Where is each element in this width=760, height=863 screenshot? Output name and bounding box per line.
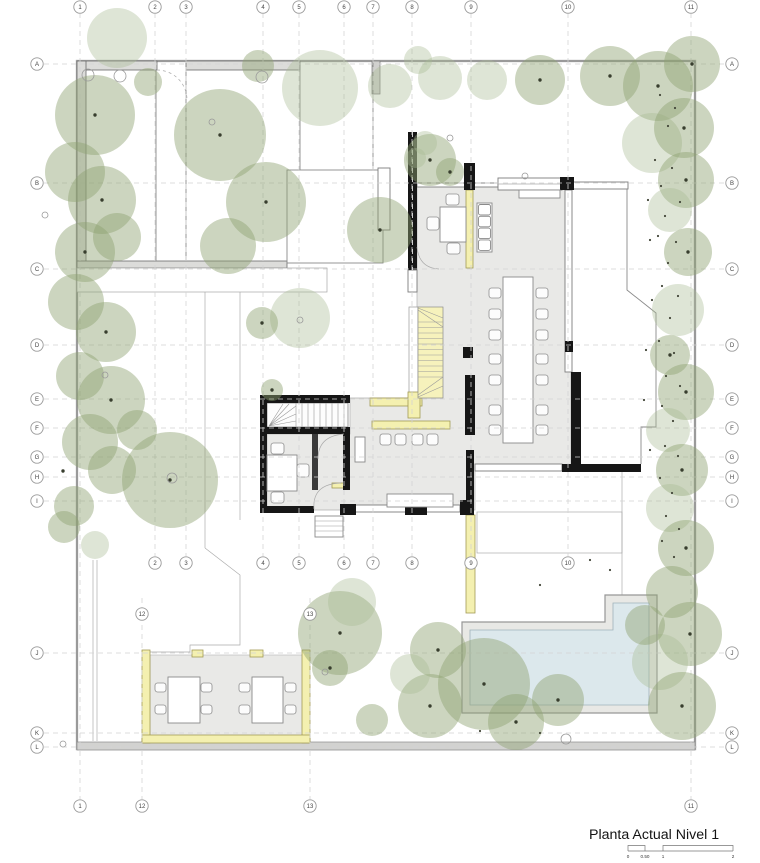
- grid-marker-label: J: [36, 651, 39, 657]
- gravel-dot: [654, 159, 656, 161]
- yellow-wall-upper: [466, 190, 473, 268]
- grid-marker: C: [726, 263, 738, 275]
- grid-marker: 7: [367, 557, 379, 569]
- tree: [356, 704, 388, 736]
- gravel-dot: [679, 201, 681, 203]
- steps-body: [315, 516, 343, 537]
- gravel-dot: [661, 285, 663, 287]
- grid-marker: H: [726, 471, 738, 483]
- grid-marker-label: 10: [565, 5, 572, 11]
- grid-marker: J: [31, 647, 43, 659]
- tree-trunk-dot: [690, 62, 693, 65]
- grid-marker: 5: [293, 557, 305, 569]
- chair: [536, 375, 548, 385]
- tree: [406, 148, 426, 168]
- grid-marker: D: [726, 339, 738, 351]
- gravel-dot: [664, 215, 666, 217]
- patio-wall-south: [142, 735, 310, 743]
- south-window-wall: [475, 464, 562, 471]
- tree-trunk-dot: [428, 158, 431, 161]
- stair-shaft-wall: [409, 307, 418, 398]
- east-path-wall: [572, 182, 628, 189]
- grid-marker-label: G: [35, 455, 40, 461]
- patio-terrace: [142, 650, 310, 743]
- scale-label: 2: [732, 854, 735, 859]
- table: [503, 277, 533, 443]
- grid-marker: C: [31, 263, 43, 275]
- grid-marker-label: F: [730, 426, 734, 432]
- tree-trunk-dot: [680, 704, 683, 707]
- tree-trunk-dot: [688, 632, 691, 635]
- tree-trunk-dot: [684, 390, 687, 393]
- entry-steps: [315, 516, 343, 537]
- patio-post: [250, 650, 263, 657]
- tree: [390, 654, 430, 694]
- table: [168, 677, 200, 723]
- chair: [536, 405, 548, 415]
- chair: [412, 434, 423, 445]
- chair: [489, 425, 501, 435]
- grid-marker-label: A: [730, 62, 734, 68]
- black-wall: [466, 450, 474, 502]
- chair: [427, 217, 439, 230]
- gravel-dot: [678, 528, 680, 530]
- grid-marker: G: [31, 451, 43, 463]
- grid-marker: 4: [257, 1, 269, 13]
- tree: [652, 284, 704, 336]
- gravel-dot: [667, 262, 669, 264]
- tree-trunk-dot: [684, 546, 687, 549]
- black-wall: [565, 341, 573, 352]
- gravel-dot: [539, 732, 541, 734]
- chair: [239, 683, 250, 692]
- grid-marker-label: K: [730, 731, 734, 737]
- chair: [536, 425, 548, 435]
- grid-marker: 8: [406, 557, 418, 569]
- grid-marker: 13: [304, 608, 316, 620]
- tree: [648, 188, 692, 232]
- grid-marker-label: C: [730, 267, 735, 273]
- tree: [242, 50, 274, 82]
- gravel-dot: [589, 559, 591, 561]
- gravel-dot: [651, 299, 653, 301]
- grid-marker: 9: [465, 557, 477, 569]
- tree: [48, 511, 80, 543]
- gravel-dot: [665, 515, 667, 517]
- gravel-dot: [659, 477, 661, 479]
- grid-marker-label: F: [35, 426, 39, 432]
- grid-marker: L: [31, 741, 43, 753]
- gravel-dot: [539, 584, 541, 586]
- black-wall: [560, 177, 574, 190]
- grid-marker: A: [726, 58, 738, 70]
- chair: [285, 705, 296, 714]
- gravel-dot: [673, 556, 675, 558]
- gravel-dot: [661, 540, 663, 542]
- grid-marker: B: [726, 177, 738, 189]
- gravel-dot: [664, 445, 666, 447]
- tree-trunk-dot: [684, 178, 687, 181]
- tree-trunk-dot: [168, 478, 171, 481]
- black-wall: [460, 500, 474, 515]
- patio-wall-west: [142, 650, 150, 743]
- grid-marker: A: [31, 58, 43, 70]
- tree: [282, 50, 358, 126]
- table: [440, 207, 466, 242]
- tree-trunk-dot: [682, 126, 685, 129]
- grid-marker: F: [726, 422, 738, 434]
- black-wall: [463, 347, 473, 358]
- chair: [380, 434, 391, 445]
- sofa-cushion: [479, 240, 491, 251]
- tree-trunk-dot: [93, 113, 96, 116]
- grid-marker: 12: [136, 800, 148, 812]
- grid-marker-label: J: [731, 651, 734, 657]
- black-wall: [562, 464, 641, 472]
- grid-marker: B: [31, 177, 43, 189]
- tree-trunk-dot: [556, 698, 559, 701]
- chair: [201, 705, 212, 714]
- grid-marker: G: [726, 451, 738, 463]
- gravel-dot: [667, 125, 669, 127]
- gravel-dot: [671, 167, 673, 169]
- sofa-cushion: [479, 205, 491, 216]
- gravel-dot: [671, 492, 673, 494]
- grid-marker: 4: [257, 557, 269, 569]
- tree-trunk-dot: [686, 250, 689, 253]
- scale-label: 0.50: [641, 854, 650, 859]
- tree: [328, 578, 376, 626]
- tree: [81, 531, 109, 559]
- chair: [201, 683, 212, 692]
- grid-marker: H: [31, 471, 43, 483]
- plan-title: Planta Actual Nivel 1: [589, 827, 719, 843]
- gravel-dot: [669, 317, 671, 319]
- grid-marker: I: [31, 495, 43, 507]
- grid-marker-label: H: [35, 475, 39, 481]
- grid-marker-label: 10: [565, 561, 572, 567]
- grid-marker: 9: [465, 1, 477, 13]
- grid-marker: 10: [562, 1, 574, 13]
- grid-marker: K: [31, 727, 43, 739]
- sofa-cushion: [479, 228, 491, 239]
- gravel-dot: [675, 241, 677, 243]
- grid-marker-label: E: [730, 397, 734, 403]
- black-wall: [464, 163, 475, 190]
- grid-marker-label: 13: [307, 612, 314, 618]
- chair: [536, 288, 548, 298]
- tree-trunk-dot: [538, 78, 541, 81]
- black-wall: [260, 395, 267, 513]
- chair: [489, 288, 501, 298]
- gravel-dot: [665, 375, 667, 377]
- gravel-dot: [658, 340, 660, 342]
- gravel-dot: [672, 420, 674, 422]
- tree-trunk-dot: [338, 631, 341, 634]
- tree-trunk-dot: [328, 666, 331, 669]
- tree: [467, 60, 507, 100]
- grid-marker-label: G: [730, 455, 735, 461]
- chair: [489, 309, 501, 319]
- chair: [489, 354, 501, 364]
- grid-marker-label: 12: [139, 612, 146, 618]
- tree-trunk-dot: [83, 250, 86, 253]
- grid-marker: 11: [685, 800, 697, 812]
- tree-trunk-dot: [448, 170, 451, 173]
- tree: [270, 288, 330, 348]
- tree-trunk-dot: [378, 228, 381, 231]
- sofa-cushion: [479, 216, 491, 227]
- grid-marker: 2: [149, 557, 161, 569]
- grid-marker: L: [726, 741, 738, 753]
- tree-trunk-dot: [104, 330, 107, 333]
- grid-marker: 7: [367, 1, 379, 13]
- grid-marker: D: [31, 339, 43, 351]
- grid-marker: F: [31, 422, 43, 434]
- grid-marker: 2: [149, 1, 161, 13]
- grid-marker-label: 11: [688, 5, 695, 11]
- tree: [368, 64, 412, 108]
- gravel-dot: [643, 399, 645, 401]
- tree-trunk-dot: [680, 468, 683, 471]
- gravel-dot: [679, 385, 681, 387]
- chair: [239, 705, 250, 714]
- scale-label: 0: [627, 854, 630, 859]
- gravel-dot: [609, 569, 611, 571]
- chair: [447, 243, 460, 254]
- chair: [489, 375, 501, 385]
- table: [387, 494, 453, 507]
- chair: [536, 330, 548, 340]
- patio-post: [192, 650, 203, 657]
- grid-marker-label: D: [35, 343, 40, 349]
- grid-marker-label: B: [35, 181, 39, 187]
- table: [267, 455, 297, 491]
- chair: [427, 434, 438, 445]
- gravel-dot: [661, 405, 663, 407]
- grid-marker: K: [726, 727, 738, 739]
- patio-wall-east: [302, 650, 310, 743]
- grid-marker: J: [726, 647, 738, 659]
- grid-marker: 6: [338, 1, 350, 13]
- grid-marker: 3: [180, 557, 192, 569]
- gravel-dot: [673, 352, 675, 354]
- tree: [134, 68, 162, 96]
- grid-marker: 11: [685, 1, 697, 13]
- tree-trunk-dot: [656, 84, 659, 87]
- grid-marker: E: [726, 393, 738, 405]
- tree: [625, 605, 665, 645]
- tree-trunk-dot: [100, 198, 103, 201]
- gravel-dot: [645, 349, 647, 351]
- black-wall: [465, 375, 475, 435]
- gravel-dot: [659, 94, 661, 96]
- tree-trunk-dot: [668, 353, 671, 356]
- chair: [489, 405, 501, 415]
- kitchen-island: [372, 421, 450, 429]
- table: [519, 190, 560, 198]
- scale-label: 1: [662, 854, 665, 859]
- gravel-dot: [649, 239, 651, 241]
- grid-marker-label: C: [35, 267, 40, 273]
- chair: [271, 443, 284, 454]
- gravel-dot: [677, 295, 679, 297]
- grid-marker: 10: [562, 557, 574, 569]
- tree-trunk-dot: [514, 720, 517, 723]
- grid-marker: I: [726, 495, 738, 507]
- tree-trunk-dot: [260, 321, 263, 324]
- chair: [536, 309, 548, 319]
- table: [252, 677, 283, 723]
- gravel-dot: [479, 730, 481, 732]
- tree: [87, 8, 147, 68]
- gravel-dot: [674, 107, 676, 109]
- grid-marker-label: A: [35, 62, 39, 68]
- chair: [155, 683, 166, 692]
- grid-marker-label: E: [35, 397, 39, 403]
- tree-trunk-dot: [264, 200, 267, 203]
- chair: [489, 330, 501, 340]
- grid-marker-label: H: [730, 475, 734, 481]
- tree: [418, 56, 462, 100]
- gravel-dot: [657, 235, 659, 237]
- tree-trunk-dot: [218, 133, 221, 136]
- grid-marker-label: K: [35, 731, 39, 737]
- grid-marker: 8: [406, 1, 418, 13]
- grid-marker: E: [31, 393, 43, 405]
- tree-trunk-dot: [109, 398, 112, 401]
- tree-trunk-dot: [428, 704, 431, 707]
- tree-trunk-dot: [482, 682, 485, 685]
- grid-marker-label: 12: [139, 804, 146, 810]
- chair: [446, 194, 459, 205]
- planter-band: [77, 268, 327, 292]
- west-wall-lower: [408, 270, 417, 292]
- grid-marker-label: D: [730, 343, 735, 349]
- tree-trunk-dot: [436, 648, 439, 651]
- main-stair: [418, 307, 443, 398]
- tree: [200, 218, 256, 274]
- chair: [155, 705, 166, 714]
- grid-marker: 1: [74, 1, 86, 13]
- grid-marker-label: 13: [307, 804, 314, 810]
- sofa: [477, 203, 492, 252]
- gravel-dot: [647, 199, 649, 201]
- tree-trunk-dot: [608, 74, 611, 77]
- grid-marker: 6: [338, 557, 350, 569]
- black-wall: [260, 506, 314, 513]
- stair-body: [418, 307, 443, 398]
- chair: [285, 683, 296, 692]
- tree: [93, 213, 141, 261]
- chair: [395, 434, 406, 445]
- black-wall: [340, 504, 356, 515]
- gravel-dot: [660, 185, 662, 187]
- grid-marker: 13: [304, 800, 316, 812]
- straight-stair: [267, 403, 348, 427]
- tree-trunk-dot: [270, 388, 273, 391]
- grid-marker-label: 11: [688, 804, 695, 810]
- grid-marker: 1: [74, 800, 86, 812]
- grid-marker: 3: [180, 1, 192, 13]
- interior-partition: [312, 434, 318, 490]
- tree-trunk-dot: [61, 469, 64, 472]
- grid-marker-label: B: [730, 181, 734, 187]
- table: [355, 437, 365, 462]
- chair: [536, 354, 548, 364]
- grid-marker: 5: [293, 1, 305, 13]
- black-wall: [571, 372, 581, 467]
- grid-marker: 12: [136, 608, 148, 620]
- gravel-dot: [677, 455, 679, 457]
- floor-plan: 1234567891011234567891012131121311AABBCC…: [0, 0, 760, 863]
- gravel-dot: [649, 449, 651, 451]
